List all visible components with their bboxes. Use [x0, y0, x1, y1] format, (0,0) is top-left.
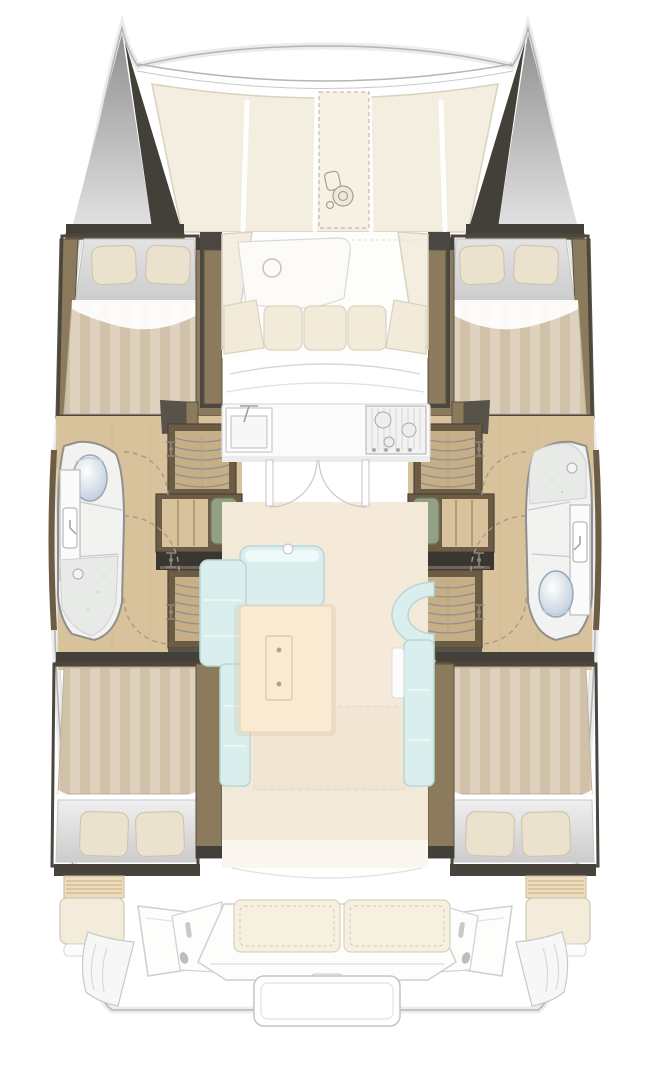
shower-drain	[73, 569, 83, 579]
catamaran-floor-plan	[0, 0, 650, 1080]
anchor-locker	[319, 92, 369, 228]
galley-sink-basin	[231, 416, 267, 448]
floor-plan-drawing	[0, 0, 650, 1080]
mast-post	[283, 544, 293, 554]
stove-burner	[384, 437, 394, 447]
toilet	[539, 571, 573, 617]
shower-texture-dot	[97, 591, 99, 593]
stove-knob	[372, 448, 376, 452]
hull-side-trim	[596, 450, 599, 630]
cockpit-bench-cushion	[264, 306, 302, 350]
aft-bench-cushion	[234, 900, 340, 952]
hull-side-trim	[52, 450, 55, 630]
shower-drain	[567, 463, 577, 473]
stove-burner	[375, 412, 391, 428]
stove-knob	[396, 448, 400, 452]
counter-shelf-edge	[222, 456, 430, 462]
shower-texture-dot	[551, 479, 553, 481]
saloon-side-bench-starboard	[404, 640, 434, 786]
shower-texture-dot	[561, 491, 563, 493]
cockpit-bench-cushion	[304, 306, 346, 350]
shower-floor	[529, 444, 586, 504]
aft-bench-cushion	[344, 900, 450, 952]
support-pillar	[392, 648, 404, 698]
shower-texture-dot	[87, 609, 89, 611]
stove-knob	[408, 448, 412, 452]
saloon-door-leaf	[362, 460, 369, 506]
cockpit-threshold	[222, 840, 428, 868]
saloon-door-leaf	[266, 460, 273, 506]
shower-texture-dot	[103, 575, 105, 577]
forward-locker-lid	[238, 238, 350, 308]
foredeck	[152, 84, 498, 232]
cockpit-bench-cushion	[348, 306, 386, 350]
stove-burner	[402, 423, 416, 437]
stove-knob	[384, 448, 388, 452]
bathroom-port	[52, 442, 125, 640]
sofa-back-bench-edge	[245, 550, 319, 562]
table-bolt	[277, 682, 282, 687]
table-bolt	[277, 648, 282, 653]
saloon-table	[240, 606, 332, 732]
bathroom-starboard	[526, 442, 599, 640]
